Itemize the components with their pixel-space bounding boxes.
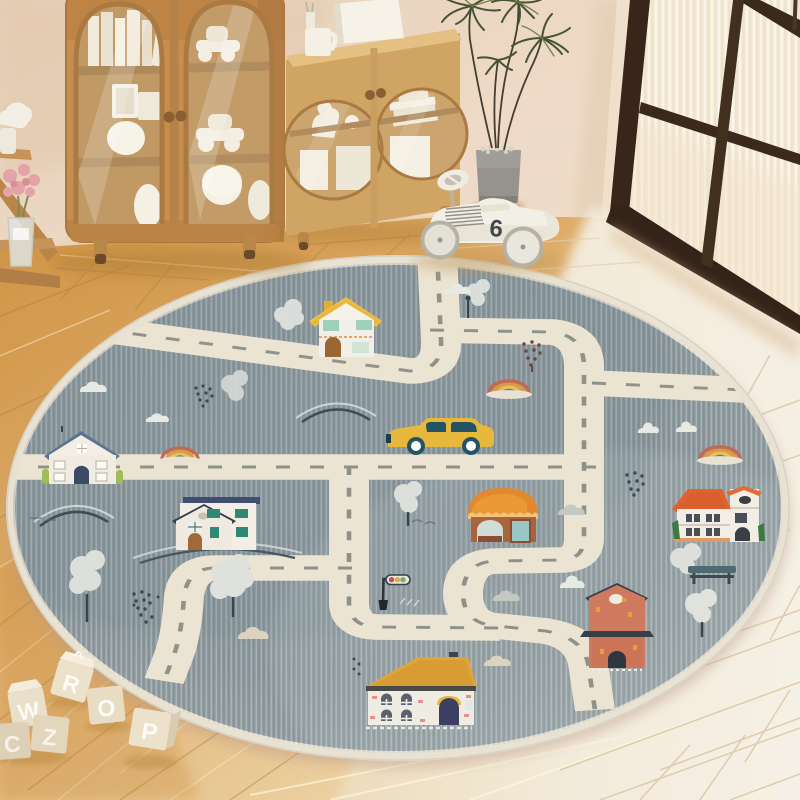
svg-text:Z: Z (41, 723, 58, 750)
svg-text:C: C (3, 730, 21, 757)
svg-text:O: O (96, 694, 117, 722)
svg-text:6: 6 (489, 215, 504, 243)
